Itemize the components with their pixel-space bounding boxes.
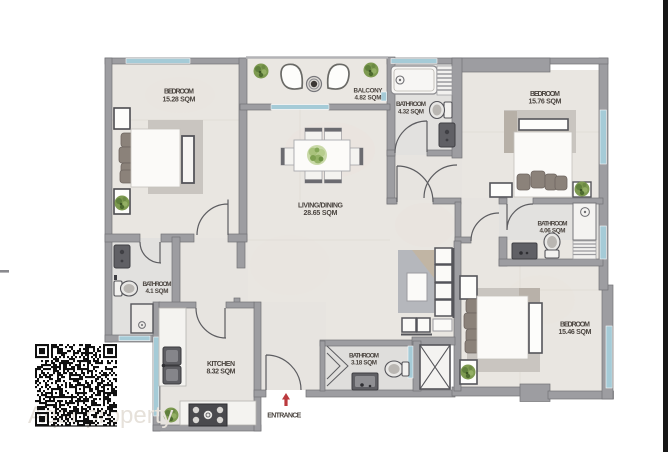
- svg-text:BATHROOM: BATHROOM: [349, 353, 379, 360]
- svg-text:4.1 SQM: 4.1 SQM: [146, 288, 169, 295]
- svg-text:15.46 SQM: 15.46 SQM: [559, 329, 592, 336]
- svg-text:ENTRANCE: ENTRANCE: [267, 412, 301, 419]
- svg-text:15.28 SQM: 15.28 SQM: [163, 96, 196, 103]
- svg-text:BATHROOM: BATHROOM: [396, 101, 426, 108]
- svg-text:BEDROOM: BEDROOM: [530, 91, 560, 98]
- svg-text:15.76 SQM: 15.76 SQM: [529, 99, 562, 106]
- svg-text:4.82 SQM: 4.82 SQM: [355, 95, 382, 102]
- svg-text:8.32 SQM: 8.32 SQM: [207, 369, 236, 376]
- svg-text:4.32 SQM: 4.32 SQM: [398, 109, 424, 116]
- svg-text:4.06 SQM: 4.06 SQM: [540, 228, 566, 235]
- svg-text:LIVING/DINING: LIVING/DINING: [298, 203, 344, 210]
- svg-text:BATHROOM: BATHROOM: [538, 221, 568, 228]
- svg-text:KITCHEN: KITCHEN: [207, 361, 235, 368]
- svg-text:3.18 SQM: 3.18 SQM: [351, 360, 377, 367]
- svg-text:BALCONY: BALCONY: [354, 88, 384, 95]
- svg-text:BEDROOM: BEDROOM: [164, 89, 194, 96]
- svg-text:BEDROOM: BEDROOM: [560, 322, 590, 329]
- svg-text:BATHROOM: BATHROOM: [143, 281, 172, 288]
- svg-text:28.65 SQM: 28.65 SQM: [304, 210, 338, 217]
